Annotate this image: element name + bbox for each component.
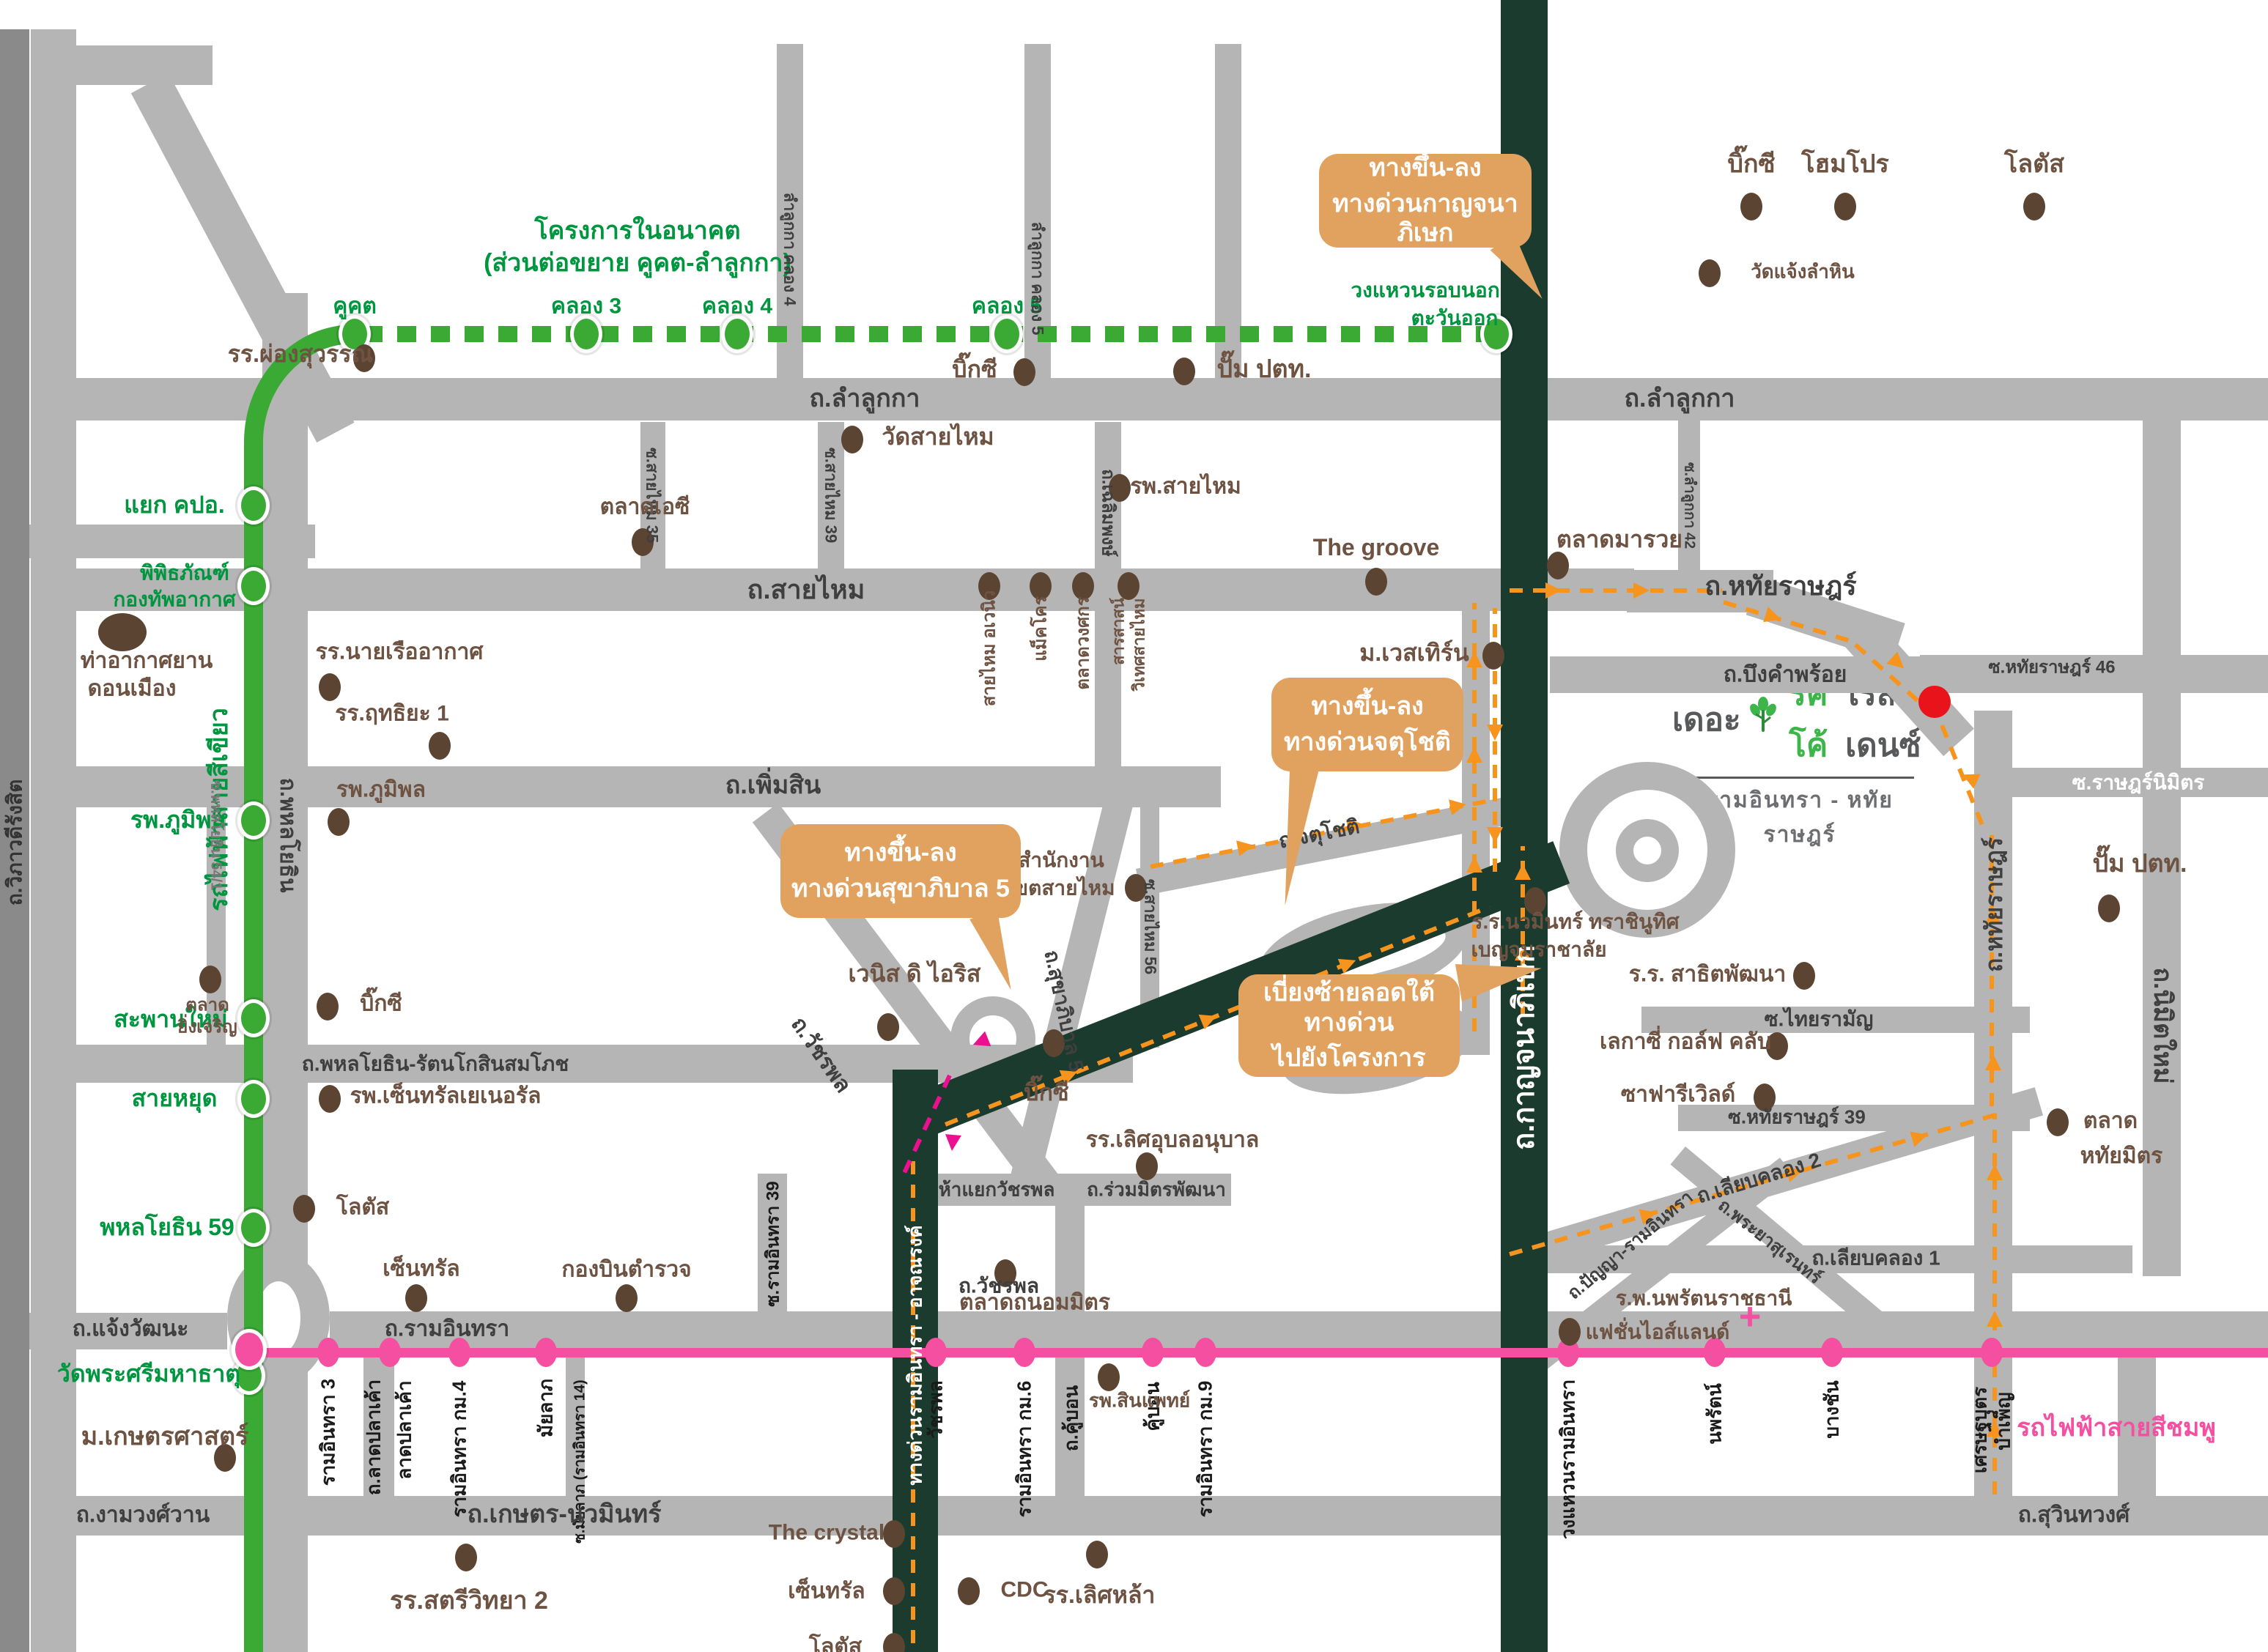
project-marker-red-dot [1918, 686, 1951, 718]
poi-dot [1072, 572, 1094, 600]
map-label: พิพิธภัณฑ์ [140, 562, 229, 583]
route-arrow-icon [1545, 582, 1562, 599]
map-label: คลอง 3 [551, 295, 621, 318]
pink-line-station [317, 1338, 339, 1367]
map-label: ปั๊ม ปตท. [1217, 357, 1312, 383]
map-label: The crystal [769, 1521, 884, 1544]
pink-line-station [925, 1338, 947, 1367]
map-label: ถ.เพิ่มสิน [725, 773, 821, 799]
map-label: ตลาดถนอมมิตร [959, 1291, 1110, 1314]
poi-dot [455, 1544, 477, 1571]
poi-dot [1740, 193, 1762, 221]
map-label: ซ.รามอินทรา 39 [764, 1181, 782, 1307]
kpo-connector [29, 525, 315, 558]
map-label: ตลาดวงศกร [1074, 596, 1092, 689]
route-arrow-icon [1236, 837, 1255, 856]
callout-line2: ทางด่วนจตุโชติ [1271, 727, 1463, 758]
map-label: รร.นายเรืออากาศ [316, 640, 484, 664]
map-label: รพ.เซ็นทรัลเยเนอรัล [350, 1084, 542, 1108]
map-label: ม.เวสเทิร์น [1359, 641, 1469, 666]
pink-line-station [1194, 1338, 1216, 1367]
map-label: วงแหวนรอบนอก [1351, 279, 1499, 300]
map-label: รร.ฤทธิยะ 1 [335, 702, 449, 725]
green-line-dashed-future [363, 326, 1507, 342]
callout-line2: ทางด่วนกาญจนาภิเษก [1319, 189, 1532, 249]
route-arrow-icon [1987, 1164, 2003, 1180]
map-label: ยิ่งเจริญ [177, 1018, 237, 1036]
map-label: ลำลูกกา คลอง 5 [1029, 222, 1046, 336]
map-label: วัดสายไหม [882, 425, 994, 450]
map-label: เวนิส ดิ ไอริส [849, 962, 981, 987]
route-callout: เบี่ยงซ้ายลอดใต้ทางด่วนไปยังโครงการ [1238, 974, 1460, 1077]
map-label: ถ.เกษตร-นวมินทร์ [468, 1502, 662, 1528]
poi-dot [1086, 1541, 1108, 1568]
poi-dot [199, 966, 221, 993]
map-label: ถ.ลาดปลาเค้า [363, 1379, 383, 1495]
route-arrow-icon [1466, 856, 1482, 873]
map-canvas: เดอะ ริคโค้ เรสซิเดนซ์ รามอินทรา - หทัยร… [0, 0, 2268, 1652]
route-arrow-icon [1466, 747, 1482, 763]
green-line-station [237, 999, 270, 1037]
poi-dot [958, 1577, 980, 1605]
callout-line2: ไปยังโครงการ [1238, 1043, 1460, 1073]
poi-dot [883, 1520, 905, 1548]
poi-dot [1834, 193, 1856, 221]
poi-dot [293, 1195, 315, 1223]
map-label: ถ.เลียบคลอง 1 [1811, 1247, 1940, 1268]
poi-dot [1118, 572, 1139, 600]
map-label: ซ.หทัยราษฎร์ 46 [1988, 658, 2115, 676]
callout-line1: ทางขึ้น-ลง [1271, 692, 1463, 722]
route-callout: ทางขึ้น-ลงทางด่วนจตุโชติ [1271, 678, 1463, 771]
pink-line-station [448, 1338, 470, 1367]
map-label: ซ.ราษฎร์นิมิตร [2072, 771, 2205, 793]
pink-line-station [1142, 1338, 1164, 1367]
map-label: ทางด่วนรามอินทรา - อาจณรงค์ [905, 1225, 925, 1485]
thanon-phahonyothin [262, 293, 308, 1652]
route-arrow-icon [1987, 1311, 2003, 1327]
green-line-station [237, 801, 270, 840]
map-label: ร.พ.นพรัตนราชธานี [1616, 1287, 1792, 1308]
poi-dot [1365, 568, 1387, 596]
map-label: ถ.แจ้งวัฒนะ [73, 1317, 189, 1341]
pink-line-station [1821, 1338, 1843, 1367]
pink-line-station [1981, 1338, 2003, 1367]
map-label: ตลาด [2083, 1109, 2138, 1133]
pink-line-station [535, 1338, 557, 1367]
poi-dot [1559, 1318, 1581, 1346]
map-label: รามอินทรา กม.9 [1195, 1381, 1215, 1518]
map-label: ดอนเมือง [88, 677, 177, 700]
callout-line1: เบี่ยงซ้ายลอดใต้ทางด่วน [1238, 978, 1460, 1038]
map-label: รร.สตรีวิทยา 2 [390, 1588, 548, 1615]
route-dashed-segment [1510, 588, 1722, 593]
map-label: กองทัพอากาศ [113, 588, 235, 610]
map-label: หทัยมิตร [2080, 1144, 2163, 1168]
poi-dot [883, 1577, 905, 1605]
map-label: ตลาดเอซี [600, 495, 690, 519]
map-label: รร.ผ่องสุวรรณ [228, 342, 373, 367]
map-label: กองบินตำรวจ [561, 1258, 691, 1281]
tree-icon [1748, 697, 1778, 743]
map-label: นพรัตน์ [1704, 1383, 1724, 1445]
poi-dot [319, 673, 341, 701]
route-callout: ทางขึ้น-ลงทางด่วนสุขาภิบาล 5 [780, 824, 1021, 918]
poi-dot [1173, 358, 1195, 385]
map-label: ถ.รามอินทรา [385, 1317, 510, 1341]
route-callout: ทางขึ้น-ลงทางด่วนกาญจนาภิเษก [1319, 154, 1532, 248]
poi-dot [429, 732, 451, 760]
topleft-stub [44, 45, 213, 85]
map-label: ปั๊ม ปตท. [2093, 851, 2187, 878]
map-label: ถ.พระยาสุเรนทร์ [1715, 1196, 1825, 1287]
map-label: ถ.ลำลูกกา [809, 386, 920, 412]
map-label: พหลโยธิน 59 [100, 1215, 234, 1240]
poi-dot [328, 808, 350, 836]
poi-dot [2098, 894, 2120, 922]
poi-dot [2023, 193, 2045, 221]
route-arrow-icon [1487, 827, 1503, 843]
route-arrow-icon [1487, 725, 1503, 741]
poi-dot [1482, 642, 1504, 670]
poi-dot [2047, 1108, 2069, 1136]
poi-dot [841, 426, 863, 453]
map-label: ซ.ลำลูกกา 42 [1682, 462, 1697, 549]
map-label: ถ.ร่วมมิตรพัฒนา [1087, 1179, 1226, 1199]
poi-dot [319, 1085, 341, 1113]
map-label: ถ.นิมิตใหม่ [2149, 967, 2175, 1084]
callout-line1: ทางขึ้น-ลง [1319, 153, 1532, 183]
route-arrow-icon [1449, 796, 1468, 815]
map-label: ถ.บึงคำพร้อย [1724, 663, 1847, 686]
map-label: ถ.หทัยราษฎร์ [1982, 837, 2007, 972]
map-label: ถ.พหลโยธิน-รัตนโกสินสมโภช [302, 1053, 569, 1074]
thanon-lamlukka [56, 378, 2268, 421]
logo-divider [1685, 777, 1914, 779]
map-label: บิ๊กซี [952, 358, 997, 382]
map-label: บิ๊กซี [1024, 1081, 1068, 1105]
map-label: บิ๊กซี [1727, 152, 1775, 178]
map-label: โลตัส [809, 1635, 862, 1652]
poi-dot [616, 1284, 638, 1312]
green-line-station [237, 1209, 270, 1247]
map-label: ถ.พหลโยธิน [276, 778, 299, 893]
map-label: รร.เลิศอุบลอนุบาล [1086, 1128, 1259, 1152]
project-name-prefix: เดอะ [1672, 694, 1741, 745]
map-label: รพ.สายไหม [1130, 475, 1241, 498]
map-label: โฮมโปร [1801, 152, 1889, 178]
map-label: แม็คโคร [1031, 596, 1049, 661]
map-label: ถ.สายไหม [747, 576, 865, 604]
map-label: บิ๊กซี [360, 992, 402, 1015]
poi-dot [1793, 962, 1815, 990]
map-label: เซ็นทรัล [788, 1579, 865, 1603]
pink-line-station [1013, 1338, 1035, 1367]
map-label: คูคต [333, 295, 377, 318]
callout-line2: ทางด่วนสุขาภิบาล 5 [780, 874, 1021, 904]
map-label: ซ.สายไหม 56 [1142, 879, 1159, 974]
green-line-station [237, 1080, 270, 1118]
map-label: ซ.พหลโยธิน 54/1 [208, 780, 224, 891]
map-label: ลำลูกกา คลอง 4 [781, 193, 798, 306]
thanon-nimitmai [2143, 378, 2181, 1276]
poi-dot [1699, 259, 1721, 287]
interchange-loop-inner [1616, 819, 1679, 882]
map-label: ถ.เฉลิมพงษ์ [1098, 469, 1117, 557]
map-label: ตลาดมารวย [1556, 527, 1682, 552]
map-label: CDC [1001, 1578, 1049, 1601]
map-label: ถ.สุวินทวงศ์ [2018, 1503, 2130, 1527]
map-label: โลตัส [336, 1196, 389, 1219]
map-label: สำนักงาน [1018, 849, 1104, 870]
map-label: วงแหวนรามอินทรา [1558, 1379, 1578, 1539]
poi-dot [1098, 1363, 1120, 1391]
map-label: ร.ร.นวมินทร์ ทราชินูทิศ [1472, 911, 1680, 932]
map-label: วัดพระศรีมหาธาตุ [57, 1362, 240, 1387]
callout-line1: ทางขึ้น-ลง [780, 838, 1021, 868]
green-line-station [721, 315, 753, 353]
green-line-station [237, 486, 270, 525]
green-line-station [237, 567, 270, 605]
map-label: มัยลาภ [536, 1379, 555, 1437]
poi-dot [1547, 552, 1569, 579]
map-label: แฟชั่นไอส์แลนด์ [1586, 1321, 1730, 1342]
map-label: แยก คปอ. [124, 493, 224, 518]
map-label: รามอินทรา กม.6 [1014, 1381, 1034, 1518]
map-label: เศรษฐบุตร [1970, 1387, 1990, 1473]
map-label: ถ.ลำลูกกา [1624, 386, 1735, 412]
map-label: ห้าแยกวัชรพล [939, 1179, 1055, 1199]
map-label: บางชัน [1822, 1380, 1842, 1438]
map-label: (ส่วนต่อขยาย คูคต-ลำลูกกา) [484, 251, 791, 277]
green-line-solid [244, 462, 263, 1652]
poi-dot [877, 1013, 899, 1041]
route-arrow-icon [944, 1134, 961, 1152]
map-label: เขตสายไหม [1007, 877, 1115, 898]
map-label: เลกาซี่ กอล์ฟ คลับ [1600, 1030, 1771, 1053]
map-label: ซ.สายไหม 39 [822, 448, 839, 543]
map-label: สารสาสน์ [1109, 598, 1126, 665]
map-label: ถ.งามวงศ์วาน [76, 1503, 210, 1527]
map-label: ถ.วิภาวดีรังสิต [4, 779, 25, 906]
pink-line-station [379, 1338, 401, 1367]
thanon-kaset-nawamin [56, 1496, 2268, 1536]
map-label: ท่าอากาศยาน [81, 649, 213, 673]
map-label: บำเพ็ญ [1993, 1392, 2013, 1450]
map-label: รพ.ภูมิพล [336, 778, 426, 801]
route-arrow-icon [1633, 582, 1650, 599]
map-label: ซ.หทัยราษฎร์ 39 [1728, 1107, 1866, 1127]
map-label: + [1739, 1297, 1761, 1338]
map-label: ร.ร. สาธิตพัฒนา [1629, 963, 1786, 986]
route-arrow-icon [1985, 1054, 2001, 1070]
route-arrow-icon [1515, 864, 1531, 880]
map-label: โลตัส [2004, 152, 2064, 178]
map-label: วัดแจ้งลำหิน [1751, 262, 1855, 281]
map-label: ถ.หทัยราษฎร์ [1704, 572, 1856, 600]
map-label: รถไฟฟ้าสายสีชมพู [2017, 1415, 2216, 1442]
map-label: รามอินทรา 3 [318, 1379, 338, 1486]
map-label: รร.เลิศหล้า [1043, 1583, 1156, 1608]
poi-dot [1013, 358, 1035, 386]
poi-dot [317, 993, 339, 1021]
map-label: สายไหม อเวนิว [980, 590, 998, 707]
map-label: The groove [1313, 536, 1439, 560]
map-label: โครงการในอนาคต [534, 218, 740, 245]
map-label: ลาดปลาเค้า [394, 1380, 414, 1479]
green-line-station [991, 315, 1023, 353]
poi-dot [98, 613, 147, 651]
map-label: ม.เกษตรศาสตร์ [81, 1424, 249, 1451]
map-label: รพ.สินแพทย์ [1089, 1390, 1190, 1410]
map-label: คลอง 4 [702, 295, 772, 318]
map-label: ซ.ไทยรามัญ [1765, 1008, 1874, 1029]
poi-dot [405, 1284, 427, 1312]
map-label: ถ.คู้บอน [1061, 1385, 1081, 1451]
map-label: สายหยุด [132, 1086, 218, 1111]
map-label: ตะวันออก [1411, 307, 1499, 328]
map-label: ตลาด [185, 996, 229, 1014]
map-label: วัชรพล [926, 1380, 945, 1438]
map-label: รามอินทรา กม.4 [449, 1381, 469, 1518]
poi-dot [1136, 1152, 1158, 1180]
map-label: เซ็นทรัล [383, 1257, 459, 1281]
frontage-left [31, 29, 76, 1652]
map-label: ซาฟารีเวิลด์ [1621, 1083, 1735, 1106]
map-label: วิเทศสายไหม [1130, 598, 1147, 691]
green-line-station [570, 315, 602, 353]
